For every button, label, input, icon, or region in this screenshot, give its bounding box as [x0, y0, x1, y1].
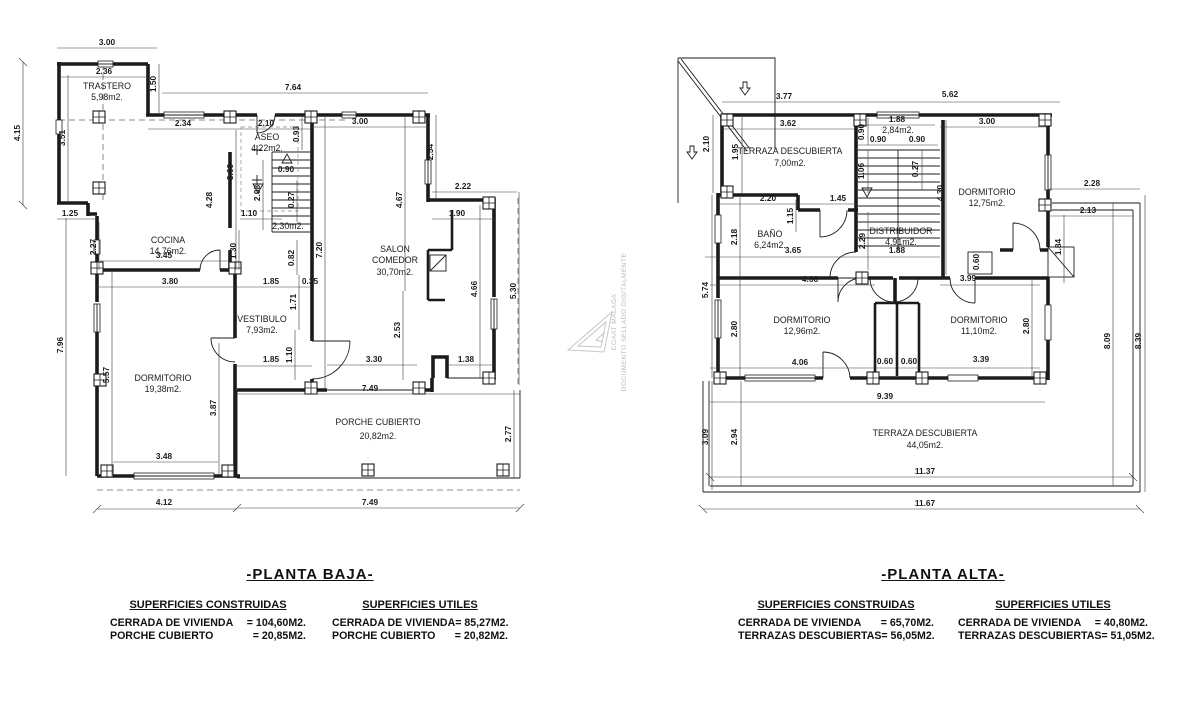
room-label: 12,96m2. — [784, 326, 821, 336]
room-label: DORMITORIO — [950, 315, 1007, 325]
dimension-label: 2.29 — [857, 233, 867, 250]
dimension-label: 5.57 — [101, 367, 111, 384]
dimension-label: 2.54 — [425, 144, 435, 161]
planta-alta-plan: TERRAZA DESCUBIERTA7,00m2.BAÑO6,24m2.DIS… — [678, 58, 1145, 513]
planta-alta-legend: -PLANTA ALTA- SUPERFICIES CONSTRUIDAS CE… — [738, 566, 1148, 643]
dimension-label: 2.80 — [1021, 318, 1031, 335]
room-label: PORCHE CUBIERTO — [335, 417, 420, 427]
drain-arrow-icon — [740, 82, 750, 95]
dimension-label: 1.50 — [148, 76, 158, 93]
dimension-label: 2.10 — [701, 136, 711, 153]
legend-row-value: = 40,80M2. — [1095, 617, 1148, 630]
dimension-label: 0.82 — [286, 250, 296, 267]
dimension-label: 1.88 — [889, 114, 906, 124]
dimension-label: 7.64 — [285, 82, 302, 92]
dimension-label: 1.10 — [241, 208, 258, 218]
legend-row-value: = 85,27M2. — [455, 617, 508, 630]
baja-useful-heading: SUPERFICIES UTILES — [332, 599, 508, 611]
dimension-label: 4.66 — [802, 274, 819, 284]
dimension-label: 3.09 — [700, 429, 710, 446]
legend-row-label: CERRADA DE VIVIENDA — [332, 617, 455, 630]
watermark-stamp: DOCUMENTO SELLADO DIGITALMENTE — [621, 253, 628, 392]
legend-row: TERRAZAS DESCUBIERTAS = 56,05M2. — [738, 630, 934, 643]
legend-row-label: TERRAZAS DESCUBIERTAS — [738, 630, 881, 643]
dimension-label: 1.30 — [228, 243, 238, 260]
watermark-org: COAAT MALAGA — [611, 293, 618, 350]
legend-row-value: = 56,05M2. — [881, 630, 934, 643]
dimension-label: 3.62 — [780, 118, 797, 128]
legend-row-value: = 104,60M2. — [247, 617, 306, 630]
dimension-label: 3.99 — [960, 273, 977, 283]
dimension-label: 3.65 — [785, 245, 802, 255]
legend-row: CERRADA DE VIVIENDA = 104,60M2. — [110, 617, 306, 630]
dimension-label: 2.22 — [455, 181, 472, 191]
legend-row: CERRADA DE VIVIENDA = 85,27M2. — [332, 617, 508, 630]
room-label: TERRAZA DESCUBIERTA — [873, 428, 978, 438]
dimension-label: 5.30 — [508, 283, 518, 300]
dimension-label: 7.49 — [362, 383, 379, 393]
room-label: 5,98m2. — [91, 92, 123, 102]
dimension-label: 2.13 — [1080, 205, 1097, 215]
dimension-label: 9.39 — [877, 391, 894, 401]
legend-row: TERRAZAS DESCUBIERTAS = 51,05M2. — [958, 630, 1148, 643]
dimension-label: 0.90 — [909, 134, 926, 144]
dimension-label: 1.45 — [830, 193, 847, 203]
legend-row: PORCHE CUBIERTO = 20,82M2. — [332, 630, 508, 643]
dimension-label: 2.34 — [175, 118, 192, 128]
legend-row-value: = 65,70M2. — [881, 617, 934, 630]
dimension-label: 3.30 — [366, 354, 383, 364]
dimension-label: 3.39 — [973, 354, 990, 364]
room-label: BAÑO — [758, 229, 783, 239]
dimension-label: 5.62 — [942, 89, 959, 99]
legend-row: CERRADA DE VIVIENDA = 65,70M2. — [738, 617, 934, 630]
planta-alta-labels: TERRAZA DESCUBIERTA7,00m2.BAÑO6,24m2.DIS… — [700, 89, 1143, 508]
dimension-label: 1.15 — [785, 208, 795, 225]
planta-baja-plan: TRASTERO5,98m2.COCINA14,76m2.ASEO4,22m2.… — [12, 37, 524, 513]
legend-row-value: = 51,05M2. — [1101, 630, 1154, 643]
dimension-label: 4.66 — [469, 281, 479, 298]
dimension-label: 2.28 — [1084, 178, 1101, 188]
dimension-label: 2.27 — [88, 239, 98, 256]
dimension-label: 2.18 — [729, 229, 739, 246]
alta-useful-heading: SUPERFICIES UTILES — [958, 599, 1148, 611]
legend-row: CERRADA DE VIVIENDA = 40,80M2. — [958, 617, 1148, 630]
room-label: 6,24m2. — [754, 240, 786, 250]
dimension-label: 3.87 — [208, 400, 218, 417]
dimension-label: 4.12 — [156, 497, 173, 507]
alta-constructed-heading: SUPERFICIES CONSTRUIDAS — [738, 599, 934, 611]
dimension-label: 4.67 — [394, 192, 404, 209]
dimension-label: 0.90 — [856, 124, 866, 141]
room-label: 2,30m2. — [272, 221, 304, 231]
legend-row-label: TERRAZAS DESCUBIERTAS — [958, 630, 1101, 643]
dimension-label: 7.96 — [55, 337, 65, 354]
dimension-label: 0.35 — [302, 276, 319, 286]
planta-baja-labels: TRASTERO5,98m2.COCINA14,76m2.ASEO4,22m2.… — [12, 37, 518, 507]
pillars — [91, 111, 509, 477]
room-label: 12,75m2. — [969, 198, 1006, 208]
planta-baja-title: -PLANTA BAJA- — [110, 566, 510, 583]
dimension-label: 2.53 — [392, 322, 402, 339]
dimension-label: 1.84 — [1053, 239, 1063, 256]
planta-alta-title: -PLANTA ALTA- — [738, 566, 1148, 583]
room-label: DISTRIBUIDOR — [869, 226, 932, 236]
room-label: TERRAZA DESCUBIERTA — [738, 146, 843, 156]
dimension-label: 1.38 — [458, 354, 475, 364]
dimension-label: 4.28 — [204, 192, 214, 209]
room-label: 4,22m2. — [251, 143, 283, 153]
dimension-label: 4.30 — [935, 185, 945, 202]
dimension-label: 0.27 — [286, 192, 296, 209]
dimension-label: 1.06 — [856, 163, 866, 180]
roof-diagonal — [678, 59, 750, 151]
dimension-label: 0.60 — [901, 356, 918, 366]
baja-constructed-heading: SUPERFICIES CONSTRUIDAS — [110, 599, 306, 611]
legend-row-label: PORCHE CUBIERTO — [110, 630, 213, 643]
room-label: 44,05m2. — [907, 440, 944, 450]
dimension-label: 0.60 — [971, 254, 981, 271]
room-label: 30,70m2. — [377, 267, 414, 277]
room-label: ASEO — [255, 132, 280, 142]
dashed-lines — [59, 64, 520, 490]
room-label: TRASTERO — [83, 81, 131, 91]
dimension-label: 1.85 — [263, 354, 280, 364]
dimension-label: 0.27 — [910, 161, 920, 178]
room-label: COMEDOR — [372, 255, 418, 265]
room-label: 20,82m2. — [360, 431, 397, 441]
dimension-label: 3.60 — [225, 164, 235, 181]
planta-baja-legend: -PLANTA BAJA- SUPERFICIES CONSTRUIDAS CE… — [110, 566, 510, 643]
dimension-label: 3.77 — [776, 91, 793, 101]
room-label: DORMITORIO — [958, 187, 1015, 197]
dimension-label: 11.37 — [915, 466, 936, 476]
dimension-label: 0.90 — [870, 134, 887, 144]
dimension-label: 0.60 — [877, 356, 894, 366]
legend-row-label: CERRADA DE VIVIENDA — [738, 617, 861, 630]
dimension-label: 1.85 — [263, 276, 280, 286]
room-label: COCINA — [151, 235, 185, 245]
fireplace-icon — [428, 210, 452, 300]
room-label: 19,38m2. — [145, 384, 182, 394]
legend-row-label: CERRADA DE VIVIENDA — [110, 617, 233, 630]
legend-row-label: PORCHE CUBIERTO — [332, 630, 435, 643]
dimension-label: 1.10 — [284, 347, 294, 364]
room-label: 7,00m2. — [774, 158, 806, 168]
dimension-label: 0.90 — [278, 164, 295, 174]
dimension-label: 3.00 — [99, 37, 116, 47]
room-label: DORMITORIO — [773, 315, 830, 325]
doors — [200, 115, 350, 379]
dimension-label: 4.15 — [12, 125, 22, 142]
dimension-label: 2.77 — [503, 426, 513, 443]
room-label: 7,93m2. — [246, 325, 278, 335]
digital-stamp-watermark: COAAT MALAGA DOCUMENTO SELLADO DIGITALME… — [568, 253, 628, 392]
dimension-label: 2.80 — [729, 321, 739, 338]
dimension-label: 3.48 — [156, 451, 173, 461]
floor-plan-sheet: TRASTERO5,98m2.COCINA14,76m2.ASEO4,22m2.… — [0, 0, 1200, 725]
room-label: DORMITORIO — [134, 373, 191, 383]
dimension-label: 1.90 — [449, 208, 466, 218]
dimension-label: 8.09 — [1102, 333, 1112, 350]
room-label: VESTIBULO — [237, 314, 287, 324]
legend-row: PORCHE CUBIERTO = 20,85M2. — [110, 630, 306, 643]
dimension-label: 1.71 — [288, 294, 298, 311]
dimension-label: 3.51 — [57, 130, 67, 147]
dimension-label: 2.10 — [258, 118, 275, 128]
dimension-label: 1.25 — [62, 208, 79, 218]
dimension-label: 0.93 — [291, 126, 301, 143]
dimension-label: 3.00 — [979, 116, 996, 126]
legend-row-label: CERRADA DE VIVIENDA — [958, 617, 1081, 630]
dimension-label: 2.94 — [729, 429, 739, 446]
legend-row-value: = 20,85M2. — [253, 630, 306, 643]
dimension-label: 3.80 — [162, 276, 179, 286]
dimension-label: 2.08 — [252, 185, 262, 202]
dimension-label: 2.20 — [760, 193, 777, 203]
dimension-label: 7.20 — [314, 242, 324, 259]
dimension-label: 3.45 — [156, 250, 173, 260]
dimension-label: 1.95 — [730, 144, 740, 161]
porch-outline — [237, 378, 520, 478]
dimension-label: 1.88 — [889, 245, 906, 255]
legend-row-value: = 20,82M2. — [455, 630, 508, 643]
dimension-label: 2.36 — [96, 66, 113, 76]
room-label: SALON — [380, 244, 410, 254]
dimension-label: 8.39 — [1133, 333, 1143, 350]
drain-arrow-icon — [687, 146, 697, 159]
dimension-label: 11.67 — [915, 498, 936, 508]
room-label: 11,10m2. — [961, 326, 997, 336]
dimension-label: 5.74 — [700, 282, 710, 299]
dimension-label: 7.49 — [362, 497, 379, 507]
dimension-label: 4.06 — [792, 357, 809, 367]
dimension-label: 3.00 — [352, 116, 369, 126]
